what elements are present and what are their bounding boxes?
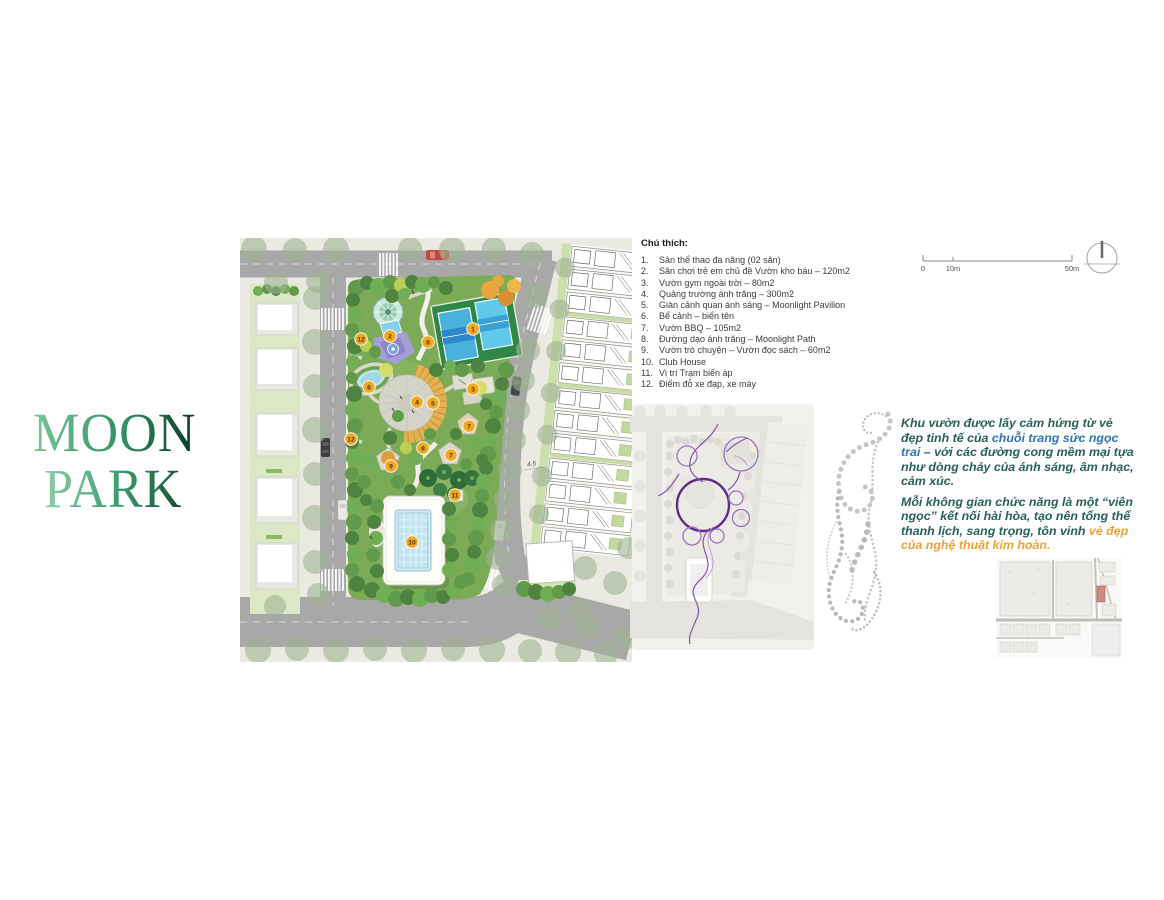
svg-text:50m: 50m <box>1065 264 1080 273</box>
svg-text:0: 0 <box>921 264 925 273</box>
location-key-map <box>994 556 1124 660</box>
plan-marker: 11 <box>449 489 462 502</box>
plan-marker: 3 <box>467 383 480 396</box>
concept-diagram <box>630 396 820 660</box>
plan-marker: 5 <box>427 397 440 410</box>
dark-car <box>321 438 330 457</box>
svg-text:6: 6 <box>367 385 371 392</box>
plan-marker: 4 <box>411 396 424 409</box>
svg-text:12: 12 <box>357 337 365 344</box>
svg-text:10m: 10m <box>946 264 961 273</box>
plan-marker: 7 <box>445 449 458 462</box>
legend: Chú thích: 1.Sân thể thao đa năng (02 sâ… <box>641 238 886 391</box>
svg-text:2: 2 <box>388 334 392 341</box>
scale-bar: 0 10m 50m <box>921 255 1079 273</box>
legend-item: 8.Đường dạo ánh trăng – Moonlight Path <box>641 334 886 345</box>
plan-marker: 10 <box>406 536 419 549</box>
svg-text:7: 7 <box>467 424 471 431</box>
plan-marker: 8 <box>422 336 435 349</box>
white-car <box>338 500 347 520</box>
legend-item: 7.Vườn BBQ – 105m2 <box>641 323 886 334</box>
scale-bar-and-compass: 0 10m 50m <box>915 237 1125 281</box>
concept-paragraph-2: Mỗi không gian chức năng là một “viên ng… <box>901 495 1134 553</box>
plan-marker: 12 <box>345 433 358 446</box>
svg-text:7: 7 <box>449 453 453 460</box>
logo-line-moon: MOON <box>33 407 196 458</box>
legend-title: Chú thích: <box>641 238 886 249</box>
legend-item: 10.Club House <box>641 357 886 368</box>
site-plan-map: 4.5 1 2 3 4 5 6 7 7 8 8 9 10 11 12 12 <box>240 238 632 662</box>
legend-item: 11.Vị trí Trạm biến áp <box>641 368 886 379</box>
svg-text:4.5: 4.5 <box>527 460 537 468</box>
svg-text:3: 3 <box>471 387 475 394</box>
concept-paragraph-1: Khu vườn được lấy cảm hứng từ vẻ đẹp tin… <box>901 416 1134 489</box>
legend-item: 3.Vườn gym ngoài trời – 80m2 <box>641 278 886 289</box>
legend-item: 2.Sân chơi trẻ em chủ đề Vườn kho báu – … <box>641 266 886 277</box>
north-arrow-icon <box>1084 241 1120 273</box>
left-townhouse-lots <box>250 284 300 614</box>
moon-park-logo: MOON PARK <box>33 407 205 514</box>
svg-text:8: 8 <box>421 446 425 453</box>
plan-marker: 7 <box>463 420 476 433</box>
plan-marker: 2 <box>384 330 397 343</box>
legend-item: 9.Vườn trò chuyện – Vườn đọc sách – 60m2 <box>641 345 886 356</box>
plan-marker: 8 <box>417 442 430 455</box>
legend-item: 1.Sân thể thao đa năng (02 sân) <box>641 255 886 266</box>
legend-item: 4.Quảng trường ánh trăng – 300m2 <box>641 289 886 300</box>
plan-marker: 9 <box>385 460 398 473</box>
plan-marker: 6 <box>363 381 376 394</box>
legend-item: 12.Điểm đỗ xe đạp, xe máy <box>641 379 886 390</box>
project-location-highlight <box>1097 586 1105 602</box>
legend-item: 5.Giàn cảnh quan ánh sáng – Moonlight Pa… <box>641 300 886 311</box>
logo-line-park: PARK <box>44 463 197 514</box>
concept-description: Khu vườn được lấy cảm hứng từ vẻ đẹp tin… <box>901 416 1134 559</box>
svg-text:8: 8 <box>426 340 430 347</box>
svg-text:11: 11 <box>451 493 458 500</box>
page: MOON PARK <box>0 0 1164 900</box>
svg-text:10: 10 <box>408 540 416 547</box>
svg-text:12: 12 <box>347 437 355 444</box>
plan-marker: 1 <box>467 323 480 336</box>
legend-item: 6.Bể cảnh – biển tên <box>641 311 886 322</box>
svg-text:4: 4 <box>415 400 419 407</box>
svg-text:1: 1 <box>471 327 475 334</box>
plan-marker: 12 <box>355 333 368 346</box>
svg-text:5: 5 <box>431 401 435 408</box>
pearl-ornament-icon <box>816 404 908 648</box>
svg-text:9: 9 <box>389 464 393 471</box>
